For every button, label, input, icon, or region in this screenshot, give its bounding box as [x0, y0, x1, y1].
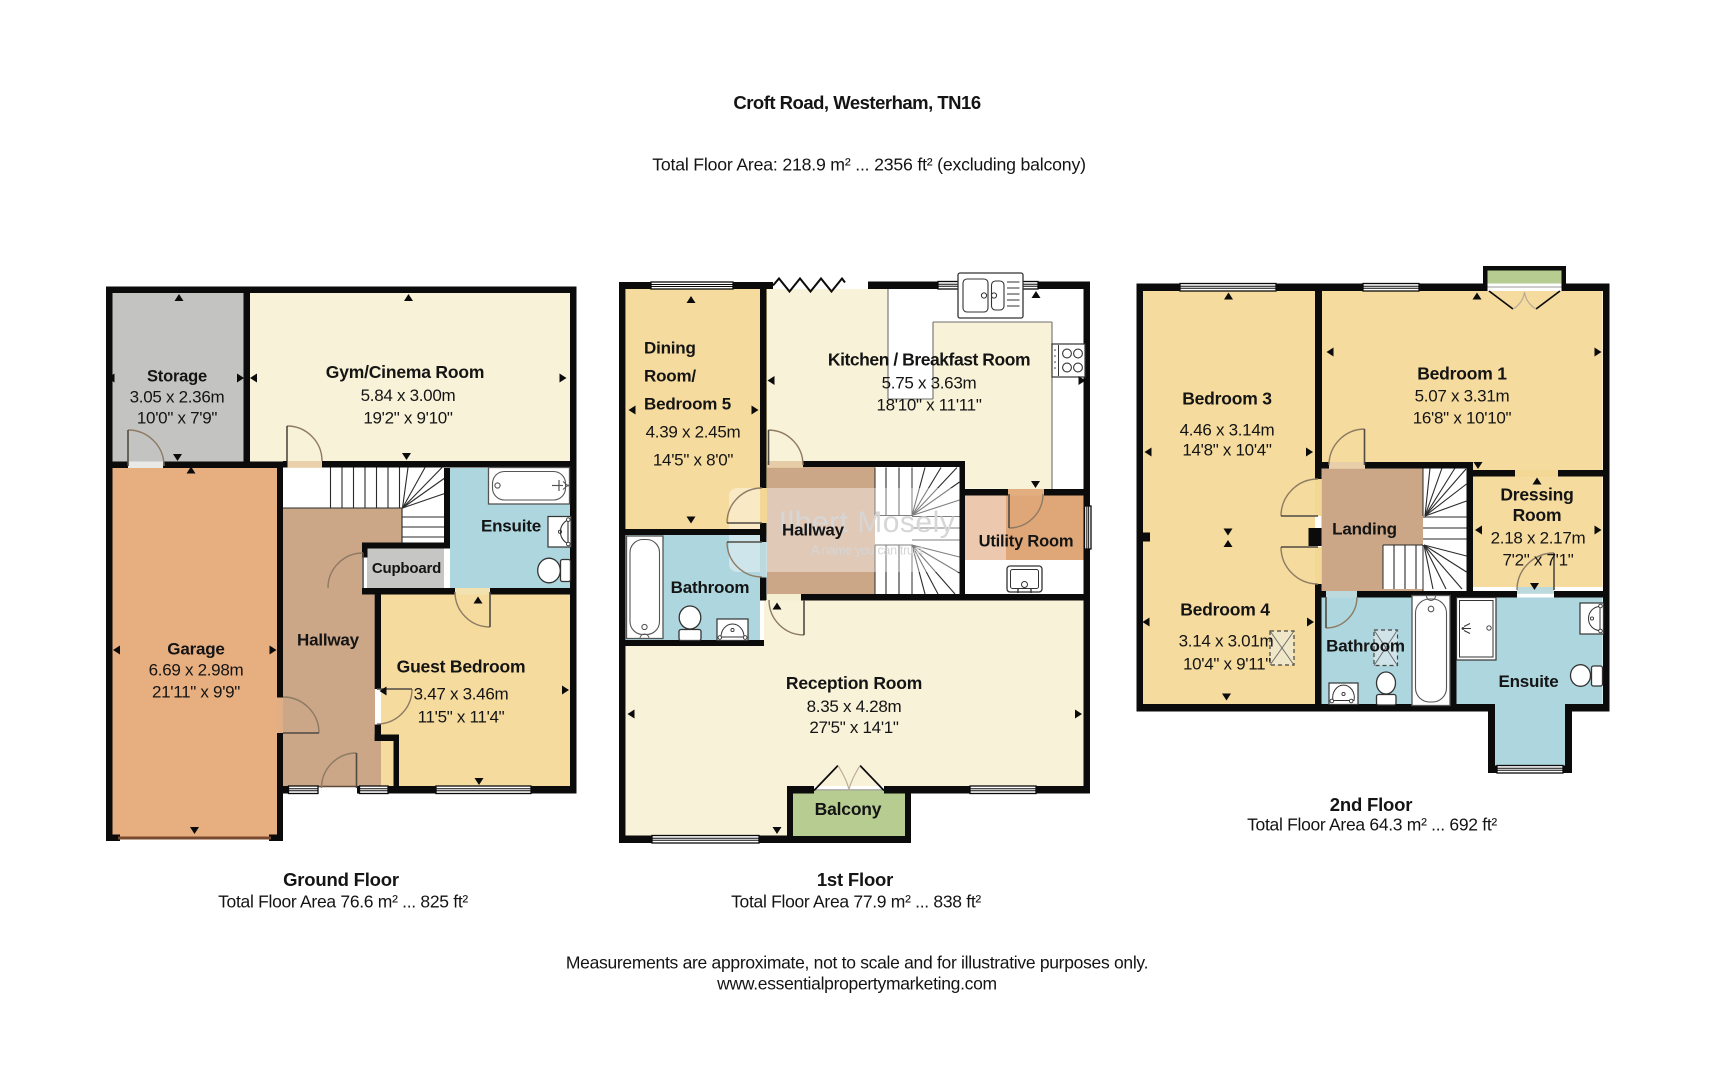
- svg-text:Storage: Storage: [147, 367, 207, 385]
- svg-text:5.84 x 3.00m: 5.84 x 3.00m: [361, 386, 456, 405]
- svg-text:www.essentialpropertymarketing: www.essentialpropertymarketing.com: [716, 974, 997, 994]
- svg-text:11'5" x 11'4": 11'5" x 11'4": [418, 707, 505, 726]
- svg-text:Hallway: Hallway: [782, 520, 845, 539]
- svg-text:14'8" x 10'4": 14'8" x 10'4": [1182, 440, 1272, 459]
- svg-text:Cupboard: Cupboard: [372, 560, 441, 577]
- svg-text:21'11" x 9'9": 21'11" x 9'9": [152, 682, 240, 701]
- svg-text:5.75 x 3.63m: 5.75 x 3.63m: [882, 373, 977, 392]
- svg-text:5.07 x 3.31m: 5.07 x 3.31m: [1415, 386, 1510, 405]
- svg-text:Room/: Room/: [644, 366, 696, 385]
- svg-text:Reception Room: Reception Room: [786, 673, 922, 693]
- svg-text:8.35 x 4.28m: 8.35 x 4.28m: [807, 697, 902, 716]
- svg-text:Bathroom: Bathroom: [671, 578, 750, 597]
- svg-text:Ground Floor: Ground Floor: [283, 869, 399, 890]
- svg-text:19'2" x 9'10": 19'2" x 9'10": [363, 408, 453, 427]
- svg-text:Room: Room: [1513, 505, 1562, 525]
- svg-text:Total Floor Area 76.6 m² ... 8: Total Floor Area 76.6 m² ... 825 ft²: [218, 892, 468, 912]
- svg-text:A name you can trust: A name you can trust: [811, 543, 923, 557]
- svg-text:Bedroom 5: Bedroom 5: [644, 394, 731, 413]
- svg-text:Bedroom 3: Bedroom 3: [1182, 389, 1272, 409]
- svg-text:Total Floor Area 77.9 m² ... 8: Total Floor Area 77.9 m² ... 838 ft²: [731, 892, 981, 912]
- svg-text:Balcony: Balcony: [815, 799, 882, 819]
- svg-text:Bathroom: Bathroom: [1326, 636, 1405, 655]
- svg-text:Dressing: Dressing: [1500, 485, 1573, 505]
- svg-text:1st Floor: 1st Floor: [817, 869, 893, 890]
- svg-text:Bedroom 1: Bedroom 1: [1417, 364, 1507, 384]
- svg-text:10'0" x 7'9": 10'0" x 7'9": [137, 408, 217, 427]
- svg-text:Garage: Garage: [167, 639, 224, 658]
- svg-text:Measurements are approximate,: Measurements are approximate, not to sca…: [566, 953, 1148, 973]
- svg-text:Ensuite: Ensuite: [1498, 672, 1558, 691]
- svg-text:4.46 x 3.14m: 4.46 x 3.14m: [1180, 420, 1275, 439]
- svg-text:3.05 x 2.36m: 3.05 x 2.36m: [130, 387, 225, 406]
- svg-text:Gym/Cinema Room: Gym/Cinema Room: [326, 362, 484, 382]
- svg-text:4.39 x 2.45m: 4.39 x 2.45m: [646, 422, 741, 441]
- svg-text:Kitchen / Breakfast Room: Kitchen / Breakfast Room: [828, 350, 1030, 370]
- svg-text:27'5" x 14'1": 27'5" x 14'1": [809, 718, 899, 737]
- svg-text:2.18 x 2.17m: 2.18 x 2.17m: [1491, 528, 1586, 547]
- svg-text:Total Floor Area 64.3 m² ... 6: Total Floor Area 64.3 m² ... 692 ft²: [1247, 815, 1497, 835]
- svg-text:Ensuite: Ensuite: [481, 516, 541, 535]
- svg-text:3.47 x 3.46m: 3.47 x 3.46m: [414, 684, 509, 703]
- svg-text:Guest Bedroom: Guest Bedroom: [397, 657, 526, 677]
- svg-text:Landing: Landing: [1332, 519, 1397, 538]
- svg-text:Dining: Dining: [644, 338, 696, 357]
- svg-text:16'8" x 10'10": 16'8" x 10'10": [1413, 408, 1512, 427]
- svg-text:6.69 x 2.98m: 6.69 x 2.98m: [149, 660, 244, 679]
- svg-text:Total Floor Area: 218.9 m² ...: Total Floor Area: 218.9 m² ... 2356 ft² …: [652, 155, 1086, 175]
- svg-text:Bedroom 4: Bedroom 4: [1180, 600, 1270, 620]
- svg-text:Utility Room: Utility Room: [979, 532, 1074, 550]
- svg-text:Croft Road, Westerham, TN16: Croft Road, Westerham, TN16: [733, 92, 980, 113]
- svg-text:10'4" x 9'11": 10'4" x 9'11": [1183, 654, 1271, 673]
- svg-text:3.14 x 3.01m: 3.14 x 3.01m: [1179, 631, 1274, 650]
- svg-text:Hallway: Hallway: [297, 630, 360, 649]
- svg-text:14'5" x 8'0": 14'5" x 8'0": [653, 450, 733, 469]
- svg-text:2nd Floor: 2nd Floor: [1330, 794, 1412, 815]
- svg-text:18'10" x 11'11": 18'10" x 11'11": [876, 395, 981, 414]
- svg-text:7'2" x 7'1": 7'2" x 7'1": [1502, 550, 1573, 569]
